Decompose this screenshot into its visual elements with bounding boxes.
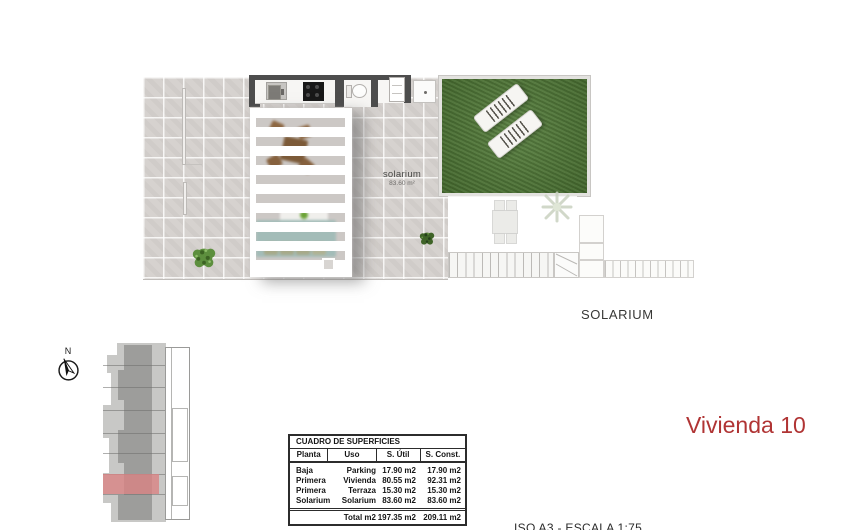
lawn-area <box>439 76 590 196</box>
shower-tray-icon <box>413 80 436 103</box>
total-const: 209.11 m2 <box>420 511 465 524</box>
site-location-diagram <box>103 343 188 522</box>
roof-outline-box <box>579 243 604 260</box>
cell-util: 17.90 m2 <box>376 466 420 476</box>
scale-note: ISO A3 - ESCALA 1:75 <box>514 521 642 530</box>
section-title: SOLARIUM <box>581 307 654 322</box>
staircase <box>448 252 554 278</box>
sink-icon <box>266 82 287 100</box>
stair-landing <box>554 252 579 278</box>
table-total-row: Total m2 197.35 m2 209.11 m2 <box>290 508 465 524</box>
table-ghost <box>492 210 518 234</box>
chair-ghost <box>494 200 505 211</box>
toilet-bowl-icon <box>352 84 367 98</box>
table-header-row: Planta Uso S. Útil S. Const. <box>290 449 465 463</box>
cell-util: 15.30 m2 <box>376 486 420 496</box>
chair-ghost <box>506 200 517 211</box>
pale-plant-icon <box>540 190 574 224</box>
solarium-name: solarium <box>368 169 436 180</box>
total-util: 197.35 m2 <box>376 511 420 524</box>
plant-icon <box>418 229 436 247</box>
cell-util: 80.55 m2 <box>376 476 420 486</box>
table-row: Primera Vivienda 80.55 m2 92.31 m2 <box>290 476 465 486</box>
cell-util: 83.60 m2 <box>376 496 420 506</box>
pergola-slats <box>250 108 352 277</box>
col-header-util: S. Útil <box>377 449 421 461</box>
cell-planta: Primera <box>290 476 328 486</box>
cell-planta: Primera <box>290 486 328 496</box>
cell-const: 92.31 m2 <box>420 476 465 486</box>
cell-const: 17.90 m2 <box>420 466 465 476</box>
chair-ghost <box>494 233 505 244</box>
north-indicator: N <box>54 347 82 388</box>
table-row: Primera Terraza 15.30 m2 15.30 m2 <box>290 486 465 496</box>
wall <box>371 75 378 107</box>
exterior-staircase <box>604 260 694 278</box>
floor-drain-icon <box>322 258 335 271</box>
hob-icon <box>303 82 324 101</box>
table-title: CUADRO DE SUPERFICIES <box>290 436 465 449</box>
total-label: Total m2 <box>328 511 376 524</box>
cell-const: 15.30 m2 <box>420 486 465 496</box>
wall <box>404 75 411 103</box>
door-icon <box>389 77 405 102</box>
solarium-area-label: solarium 83.60 m² <box>368 169 436 187</box>
table-row: Solarium Solarium 83.60 m2 83.60 m2 <box>290 496 465 506</box>
sheet-title: Vivienda 10 <box>686 412 806 439</box>
solarium-area-value: 83.60 m² <box>368 180 436 187</box>
chair-ghost <box>506 233 517 244</box>
cell-uso: Parking <box>328 466 376 476</box>
roof-outline-box <box>579 215 604 243</box>
cell-planta: Baja <box>290 466 328 476</box>
lower-terrace-ghost <box>448 196 577 252</box>
cell-uso: Solarium <box>328 496 376 506</box>
surfaces-table: CUADRO DE SUPERFICIES Planta Uso S. Útil… <box>288 434 467 526</box>
cell-const: 83.60 m2 <box>420 496 465 506</box>
col-header-const: S. Const. <box>421 449 465 461</box>
cell-planta: Solarium <box>290 496 328 506</box>
col-header-planta: Planta <box>290 449 328 461</box>
cell-uso: Terraza <box>328 486 376 496</box>
plan-sheet: solarium 83.60 m² SOLARIUM N <box>0 0 850 530</box>
col-header-uso: Uso <box>328 449 376 461</box>
adjacent-plot-outline <box>165 347 190 520</box>
cell-uso: Vivienda <box>328 476 376 486</box>
wall <box>335 75 344 107</box>
north-arrow-icon <box>55 356 82 383</box>
expansion-joint <box>182 88 186 165</box>
expansion-joint <box>183 182 187 215</box>
plant-icon <box>190 243 218 271</box>
pergola <box>250 108 352 277</box>
roof-outline-box <box>579 260 604 278</box>
unit-highlight <box>103 474 159 494</box>
north-label: N <box>54 347 82 356</box>
joint-tick <box>186 164 202 165</box>
table-row: Baja Parking 17.90 m2 17.90 m2 <box>290 466 465 476</box>
